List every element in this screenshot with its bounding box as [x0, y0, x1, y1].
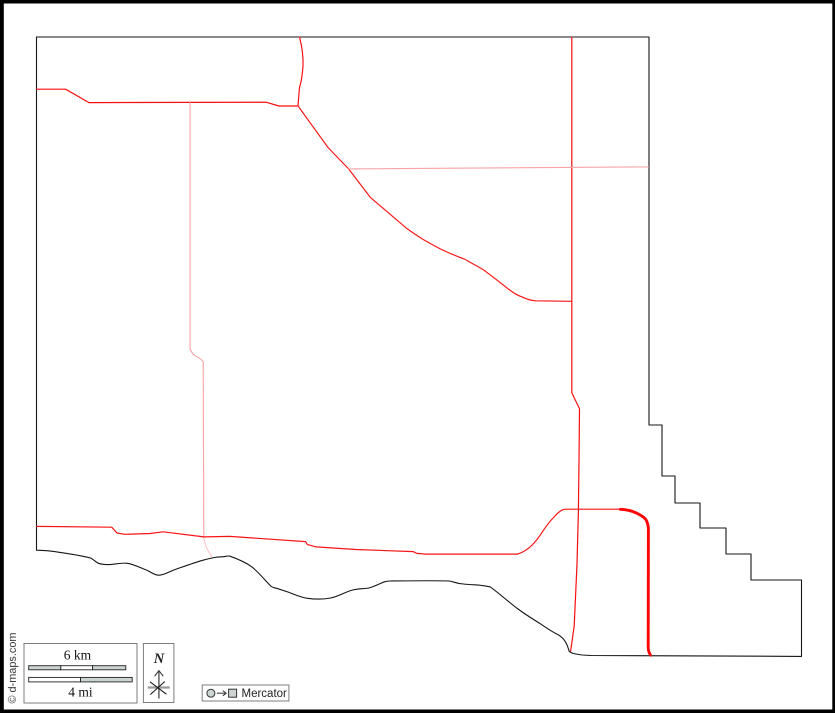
svg-text:N: N — [153, 651, 165, 667]
svg-text:4 mi: 4 mi — [68, 684, 93, 699]
svg-text:© d-maps.com: © d-maps.com — [7, 633, 19, 704]
svg-text:Mercator: Mercator — [242, 688, 288, 700]
svg-text:6 km: 6 km — [64, 648, 92, 663]
